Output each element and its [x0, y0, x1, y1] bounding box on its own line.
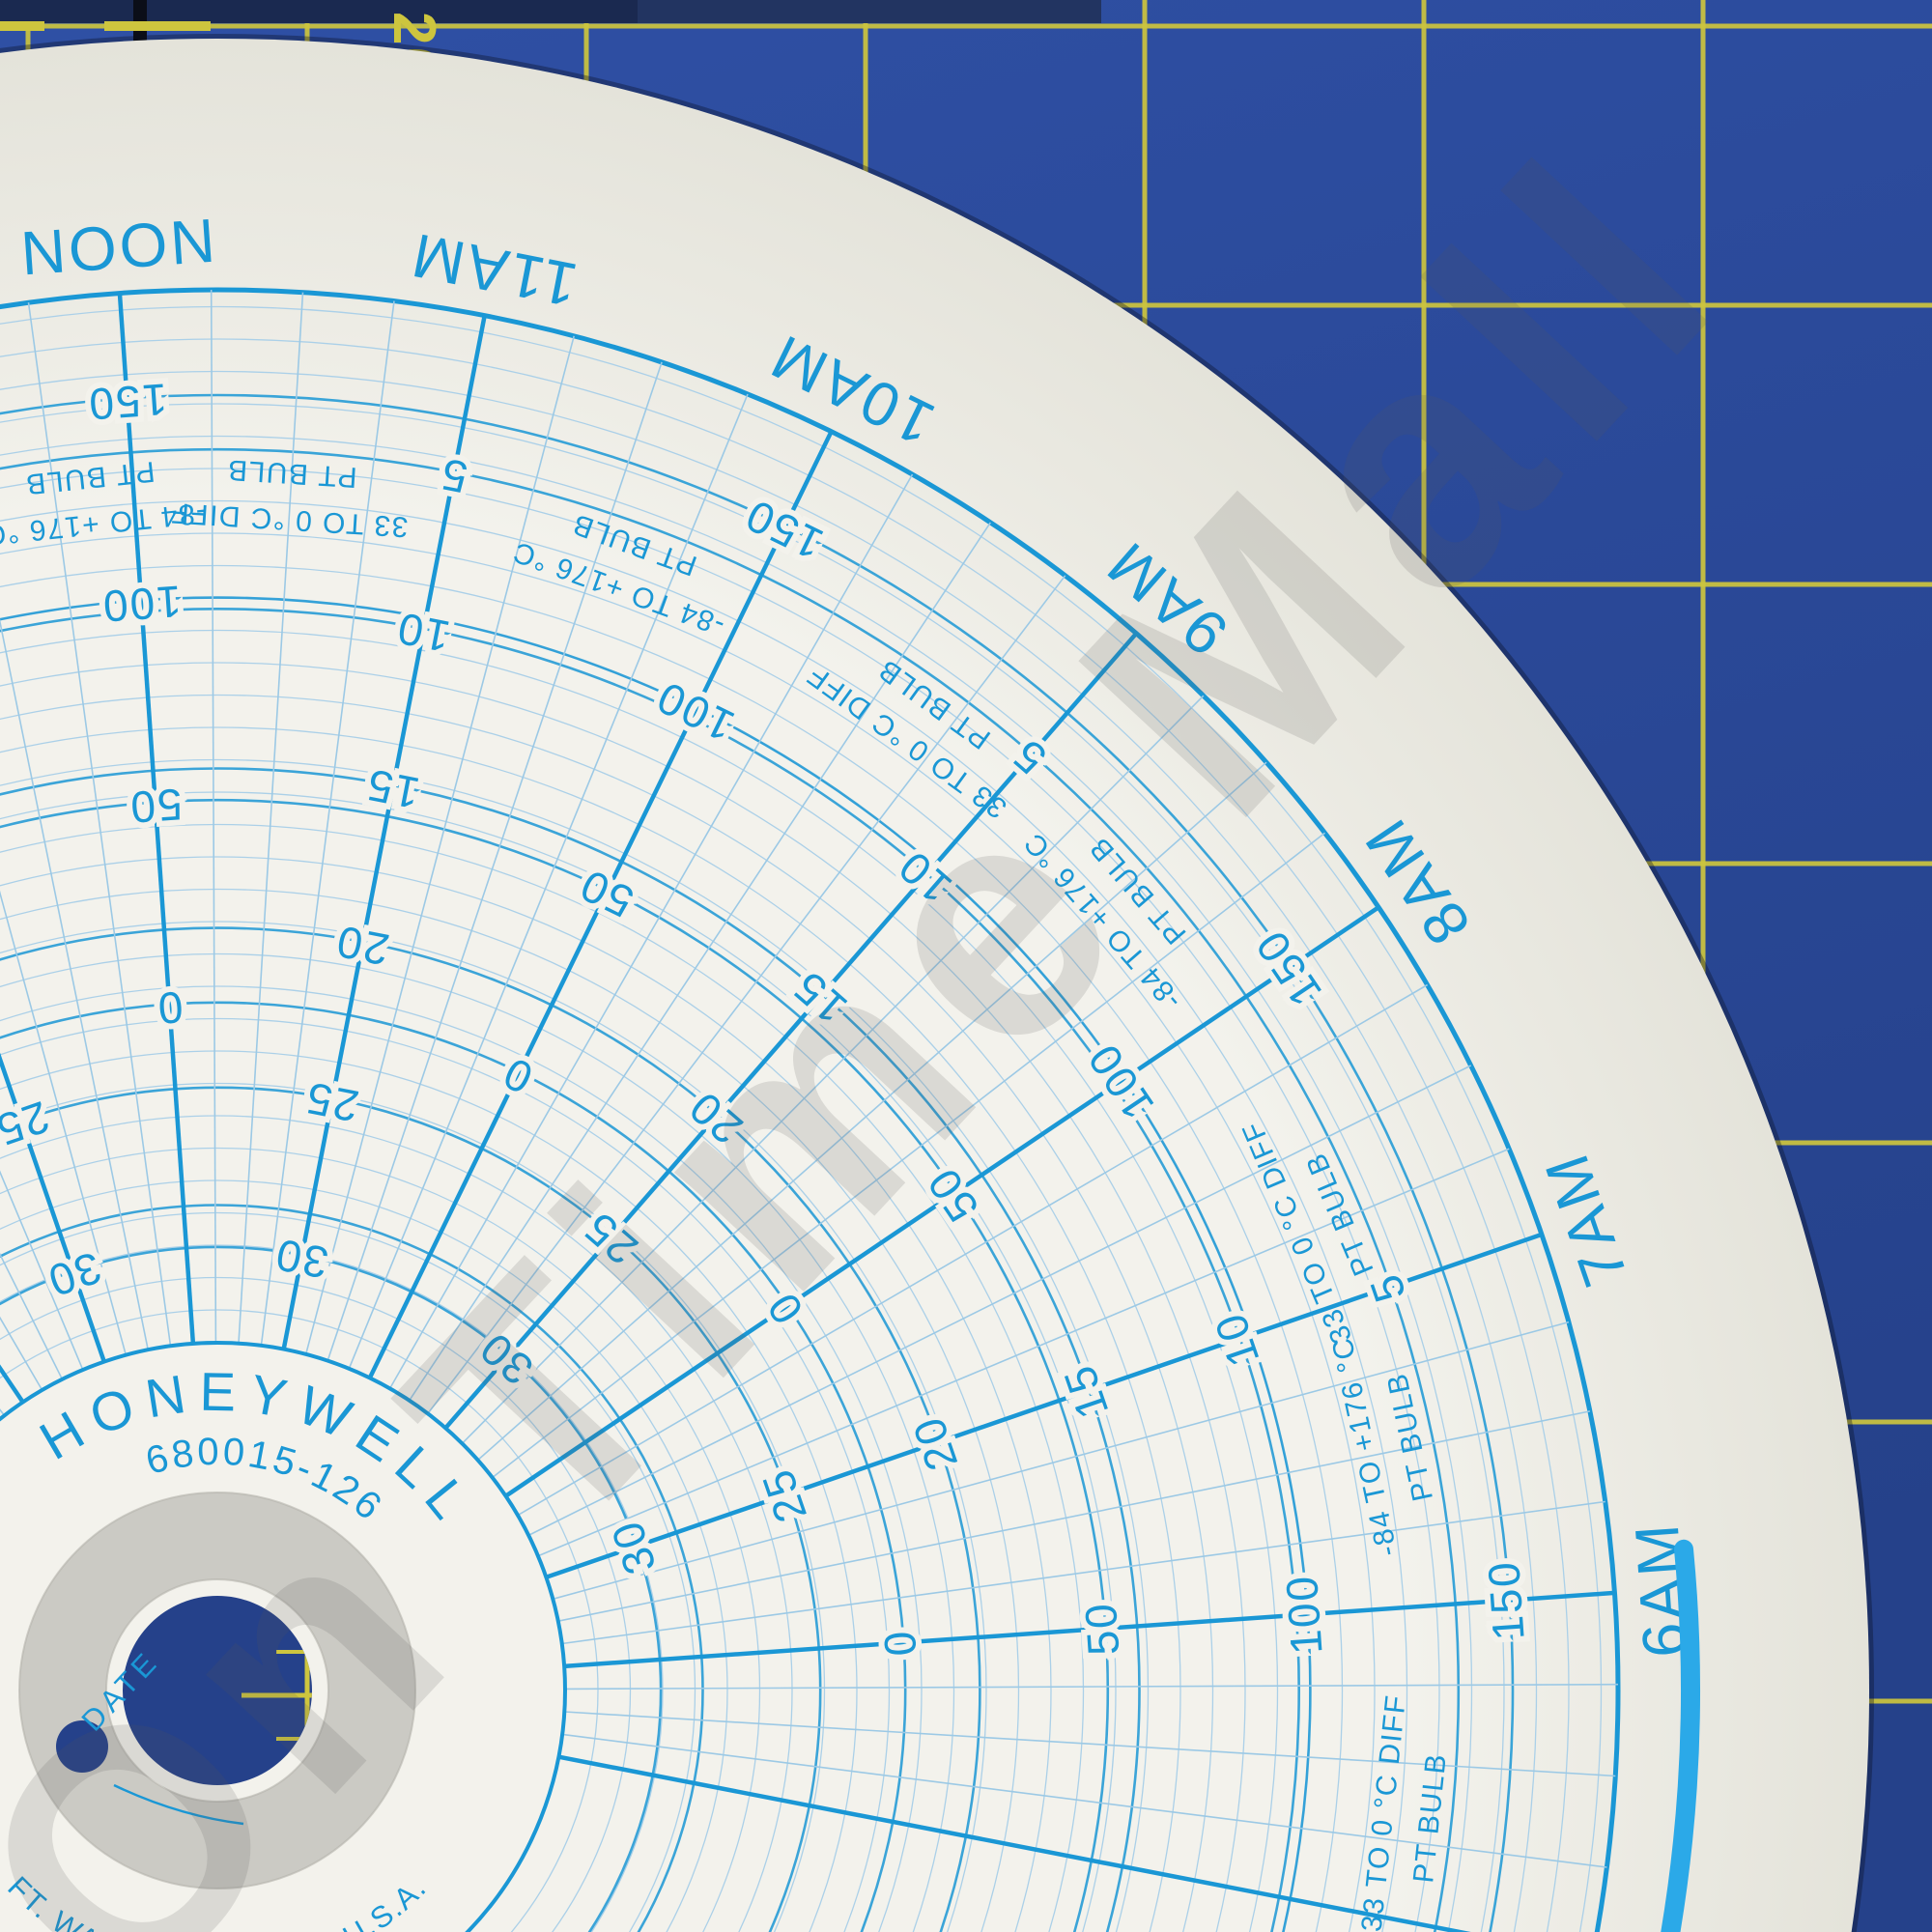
- scale-number: 50: [128, 779, 185, 833]
- scale-number: 15: [361, 759, 423, 819]
- scale-number: 150: [86, 374, 169, 430]
- scale-number: 0: [155, 982, 185, 1035]
- scale-number: 50: [1075, 1601, 1129, 1658]
- scale-number: 30: [270, 1229, 332, 1289]
- scale-number: 150: [1478, 1559, 1534, 1642]
- scale-number: 0: [874, 1628, 926, 1658]
- hour-label: NOON: [15, 206, 217, 289]
- scale-number: 25: [300, 1072, 362, 1132]
- photo-chart-on-cutting-mat: 2051015202530150100500510152025301501005…: [0, 0, 1932, 1932]
- scale-number: 100: [1276, 1573, 1332, 1656]
- scene-svg: 2051015202530150100500510152025301501005…: [0, 0, 1932, 1932]
- scale-number: 100: [99, 576, 183, 632]
- scale-number: 10: [392, 603, 454, 663]
- scale-number: 20: [331, 916, 393, 976]
